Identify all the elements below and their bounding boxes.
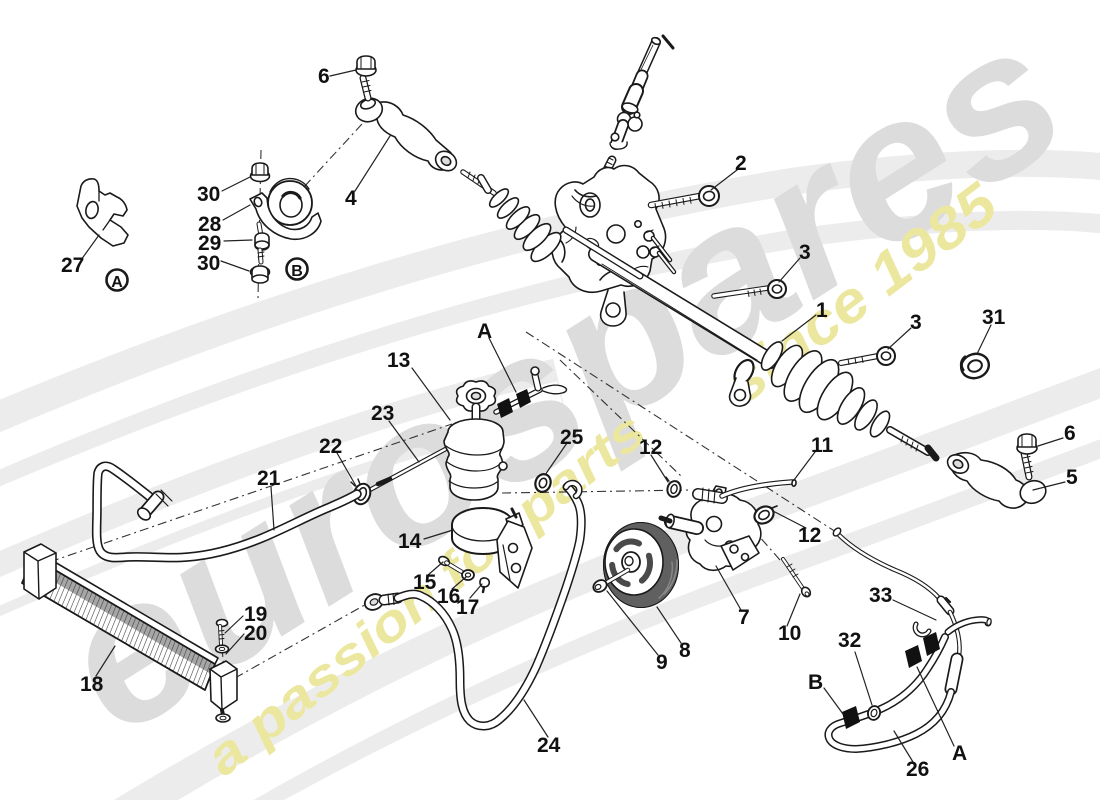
svg-text:30: 30 — [197, 252, 220, 275]
svg-text:11: 11 — [811, 434, 834, 457]
svg-text:9: 9 — [656, 651, 668, 674]
svg-text:12: 12 — [639, 436, 662, 459]
svg-text:6: 6 — [318, 65, 330, 88]
svg-text:2: 2 — [735, 152, 747, 175]
svg-text:5: 5 — [1066, 466, 1078, 489]
svg-text:22: 22 — [319, 435, 342, 458]
svg-text:31: 31 — [982, 306, 1006, 329]
svg-text:33: 33 — [869, 584, 892, 607]
svg-text:15: 15 — [413, 571, 437, 594]
svg-text:20: 20 — [244, 622, 267, 645]
svg-text:27: 27 — [61, 254, 84, 277]
svg-text:4: 4 — [345, 187, 357, 210]
svg-text:6: 6 — [1064, 422, 1076, 445]
svg-text:13: 13 — [387, 349, 410, 372]
svg-text:7: 7 — [738, 606, 750, 629]
svg-text:A: A — [477, 320, 492, 343]
svg-text:23: 23 — [371, 402, 394, 425]
svg-text:17: 17 — [456, 596, 479, 619]
svg-text:32: 32 — [838, 629, 861, 652]
svg-text:14: 14 — [398, 530, 422, 553]
svg-text:12: 12 — [798, 524, 821, 547]
svg-text:25: 25 — [560, 426, 584, 449]
svg-text:24: 24 — [537, 734, 561, 757]
svg-text:30: 30 — [197, 183, 220, 206]
svg-text:B: B — [291, 263, 303, 280]
svg-text:A: A — [111, 274, 123, 291]
svg-text:26: 26 — [906, 758, 929, 781]
svg-text:8: 8 — [679, 639, 691, 662]
svg-text:21: 21 — [257, 467, 281, 490]
svg-text:10: 10 — [778, 622, 801, 645]
svg-text:B: B — [808, 671, 823, 694]
svg-text:3: 3 — [910, 311, 922, 334]
svg-text:1: 1 — [816, 299, 828, 322]
svg-text:A: A — [952, 742, 967, 765]
svg-text:18: 18 — [80, 673, 104, 696]
svg-text:3: 3 — [799, 241, 811, 264]
